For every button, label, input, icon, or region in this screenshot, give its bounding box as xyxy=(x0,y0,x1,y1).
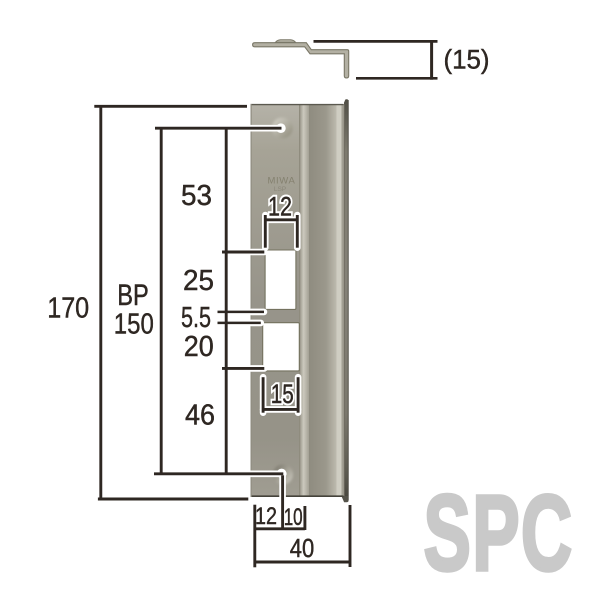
svg-text:15: 15 xyxy=(271,379,294,409)
svg-text:53: 53 xyxy=(181,180,212,212)
svg-text:MIWA: MIWA xyxy=(268,176,296,187)
svg-text:150: 150 xyxy=(114,309,154,341)
svg-text:170: 170 xyxy=(47,292,89,324)
svg-text:5.5: 5.5 xyxy=(181,302,211,334)
svg-text:12: 12 xyxy=(255,503,277,530)
svg-text:10: 10 xyxy=(284,504,303,531)
svg-text:40: 40 xyxy=(290,533,315,563)
svg-text:25: 25 xyxy=(183,265,214,297)
svg-text:BP: BP xyxy=(117,279,149,312)
svg-text:12: 12 xyxy=(268,192,292,222)
svg-text:(15): (15) xyxy=(444,44,490,74)
svg-text:SPC: SPC xyxy=(424,473,574,594)
svg-text:46: 46 xyxy=(185,400,215,432)
svg-text:20: 20 xyxy=(184,331,214,363)
